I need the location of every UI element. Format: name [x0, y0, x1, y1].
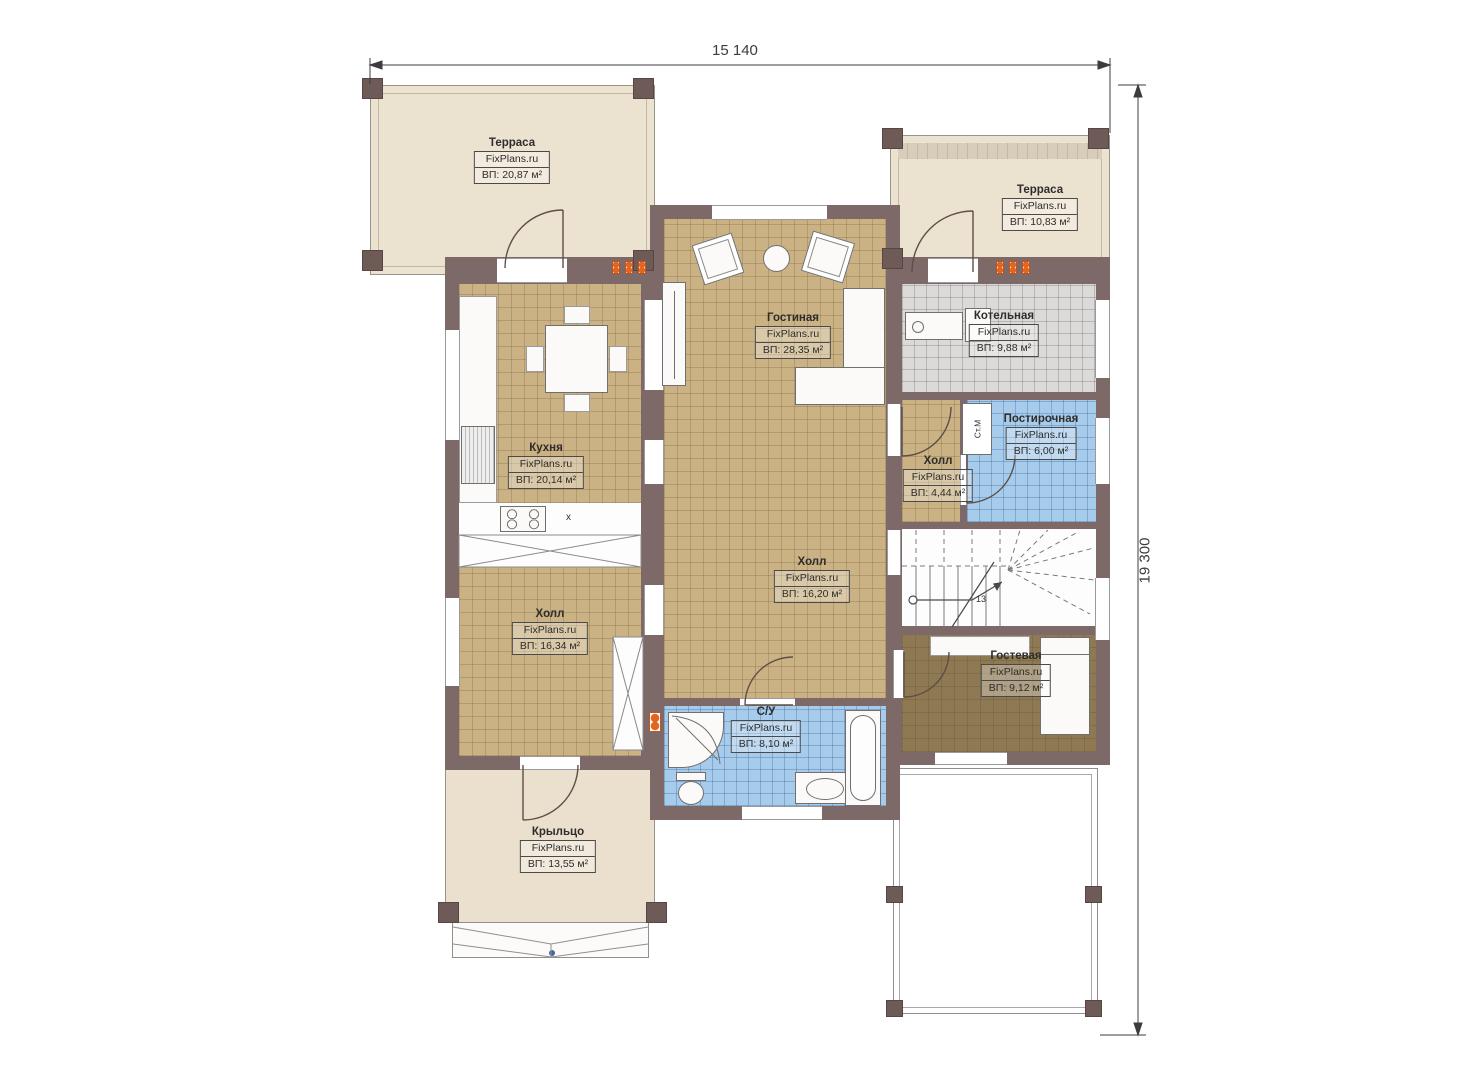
passage-opening — [644, 300, 664, 390]
window — [445, 330, 460, 440]
radiator-icon — [1022, 261, 1030, 274]
room-name: Кухня — [508, 442, 584, 454]
tv-bench-line — [674, 291, 675, 379]
wall-stairs-guest — [902, 626, 1096, 635]
toilet-bowl — [678, 781, 704, 805]
room-area: ВП: 20,14 м² — [509, 473, 583, 488]
radiator-icon — [612, 261, 620, 274]
room-label-terrace-right: Терраса FixPlans.ru ВП: 10,83 м² — [1002, 184, 1078, 231]
porch-post — [438, 902, 459, 923]
wall-boiler-laundry — [902, 392, 1096, 400]
towel-heater — [649, 712, 661, 732]
room-area: ВП: 6,00 м² — [1007, 444, 1075, 459]
room-name: Гостевая — [981, 650, 1051, 662]
radiator-icon — [1009, 261, 1017, 274]
room-area: ВП: 16,34 м² — [513, 639, 587, 654]
kitchen-sink-marker: х — [566, 512, 571, 523]
room-label-bathroom: С/У FixPlans.ru ВП: 8,10 м² — [731, 706, 801, 753]
room-label-kitchen: Кухня FixPlans.ru ВП: 20,14 м² — [508, 442, 584, 489]
room-label-hall-center: Холл FixPlans.ru ВП: 16,20 м² — [774, 556, 850, 603]
stair-count-note: 13 — [976, 594, 986, 604]
sink-basin — [806, 778, 844, 800]
terrace-post — [882, 128, 903, 149]
dining-chair — [526, 346, 544, 372]
door-opening — [740, 698, 795, 706]
room-label-hall-left: Холл FixPlans.ru ВП: 16,34 м² — [512, 608, 588, 655]
room-name: Холл — [512, 608, 588, 620]
room-brand: FixPlans.ru — [509, 457, 583, 473]
room-area: ВП: 4,44 м² — [904, 486, 972, 501]
room-area: ВП: 13,55 м² — [521, 857, 595, 872]
window — [712, 205, 827, 220]
window — [1095, 578, 1110, 640]
pergola-post — [886, 1000, 903, 1017]
radiator-icon — [638, 261, 646, 274]
radiator-markers-boiler — [996, 261, 1030, 274]
dining-chair — [564, 306, 590, 324]
room-name: Холл — [903, 455, 973, 467]
room-label-boiler: Котельная FixPlans.ru ВП: 9,88 м² — [969, 310, 1039, 357]
window — [742, 806, 822, 820]
floor-stairs — [902, 529, 1096, 628]
terrace-post — [362, 78, 383, 99]
room-brand: FixPlans.ru — [475, 152, 549, 168]
room-brand: FixPlans.ru — [1007, 428, 1075, 444]
dining-chair — [609, 346, 627, 372]
room-label-living: Гостиная FixPlans.ru ВП: 28,35 м² — [755, 312, 831, 359]
room-name: Крыльцо — [520, 826, 596, 838]
toilet-tank — [676, 772, 706, 781]
window — [1095, 300, 1110, 378]
room-name: Гостиная — [755, 312, 831, 324]
terrace-right-boards — [898, 143, 1102, 159]
room-brand: FixPlans.ru — [1003, 199, 1077, 215]
room-name: Терраса — [1002, 184, 1078, 196]
radiator-icon — [996, 261, 1004, 274]
porch-step-dot — [549, 950, 555, 956]
passage-opening — [887, 530, 901, 575]
room-name: С/У — [731, 706, 801, 718]
terrace-post — [633, 78, 654, 99]
floor-hall-left — [459, 567, 641, 756]
room-area: ВП: 9,12 м² — [982, 681, 1050, 696]
window — [935, 752, 1007, 765]
door-opening — [497, 258, 567, 283]
coffee-table — [763, 245, 790, 272]
window — [1095, 418, 1110, 484]
dining-chair — [564, 394, 590, 412]
room-label-porch: Крыльцо FixPlans.ru ВП: 13,55 м² — [520, 826, 596, 873]
room-brand: FixPlans.ru — [775, 571, 849, 587]
dimension-width-label: 15 140 — [712, 42, 758, 59]
room-area: ВП: 9,88 м² — [970, 341, 1038, 356]
tv-bench — [662, 282, 686, 386]
terrace-post — [882, 248, 903, 269]
porch-post — [646, 902, 667, 923]
radiator-icon — [625, 261, 633, 274]
room-label-hall-small: Холл FixPlans.ru ВП: 4,44 м² — [903, 455, 973, 502]
room-brand: FixPlans.ru — [513, 623, 587, 639]
room-area: ВП: 20,87 м² — [475, 168, 549, 183]
window — [445, 598, 460, 686]
room-name: Постирочная — [1004, 413, 1079, 425]
door-opening — [887, 404, 901, 456]
pergola-post — [1085, 1000, 1102, 1017]
radiator-markers-kitchen — [612, 261, 646, 274]
room-brand: FixPlans.ru — [904, 470, 972, 486]
room-label-guest: Гостевая FixPlans.ru ВП: 9,12 м² — [981, 650, 1051, 697]
washing-machine-label: Ст.М — [972, 420, 982, 439]
kitchen-counter-band — [459, 503, 641, 567]
room-brand: FixPlans.ru — [970, 325, 1038, 341]
terrace-post — [362, 250, 383, 271]
kitchen-sink-unit — [461, 426, 495, 484]
room-name: Терраса — [474, 137, 550, 149]
room-area: ВП: 16,20 м² — [775, 587, 849, 602]
room-area: ВП: 10,83 м² — [1003, 215, 1077, 230]
room-brand: FixPlans.ru — [982, 665, 1050, 681]
door-opening — [520, 756, 580, 770]
boiler-unit — [905, 312, 963, 340]
passage-opening — [644, 440, 664, 484]
bathtub-inner — [850, 715, 876, 801]
terrace-post — [1088, 128, 1109, 149]
stove — [500, 506, 546, 532]
passage-opening — [644, 585, 664, 635]
room-brand: FixPlans.ru — [732, 721, 800, 737]
pergola-post — [886, 886, 903, 903]
bathtub — [845, 710, 881, 806]
pergola-frame — [893, 768, 1098, 1014]
door-opening — [893, 650, 904, 698]
pergola-post — [1085, 886, 1102, 903]
room-brand: FixPlans.ru — [756, 327, 830, 343]
room-area: ВП: 28,35 м² — [756, 343, 830, 358]
room-name: Котельная — [969, 310, 1039, 322]
wall-stub — [644, 487, 664, 582]
room-label-terrace-left: Терраса FixPlans.ru ВП: 20,87 м² — [474, 137, 550, 184]
room-area: ВП: 8,10 м² — [732, 737, 800, 752]
room-name: Холл — [774, 556, 850, 568]
washing-machine: Ст.М — [962, 403, 992, 455]
room-label-laundry: Постирочная FixPlans.ru ВП: 6,00 м² — [1004, 413, 1079, 460]
sofa-seat — [795, 367, 885, 405]
door-opening — [928, 258, 978, 283]
boiler-dial — [912, 321, 924, 333]
floor-plan-canvas: Ст.М — [0, 0, 1474, 1080]
dining-table — [545, 325, 608, 393]
dimension-height-label: 19 300 — [1136, 538, 1153, 584]
room-brand: FixPlans.ru — [521, 841, 595, 857]
